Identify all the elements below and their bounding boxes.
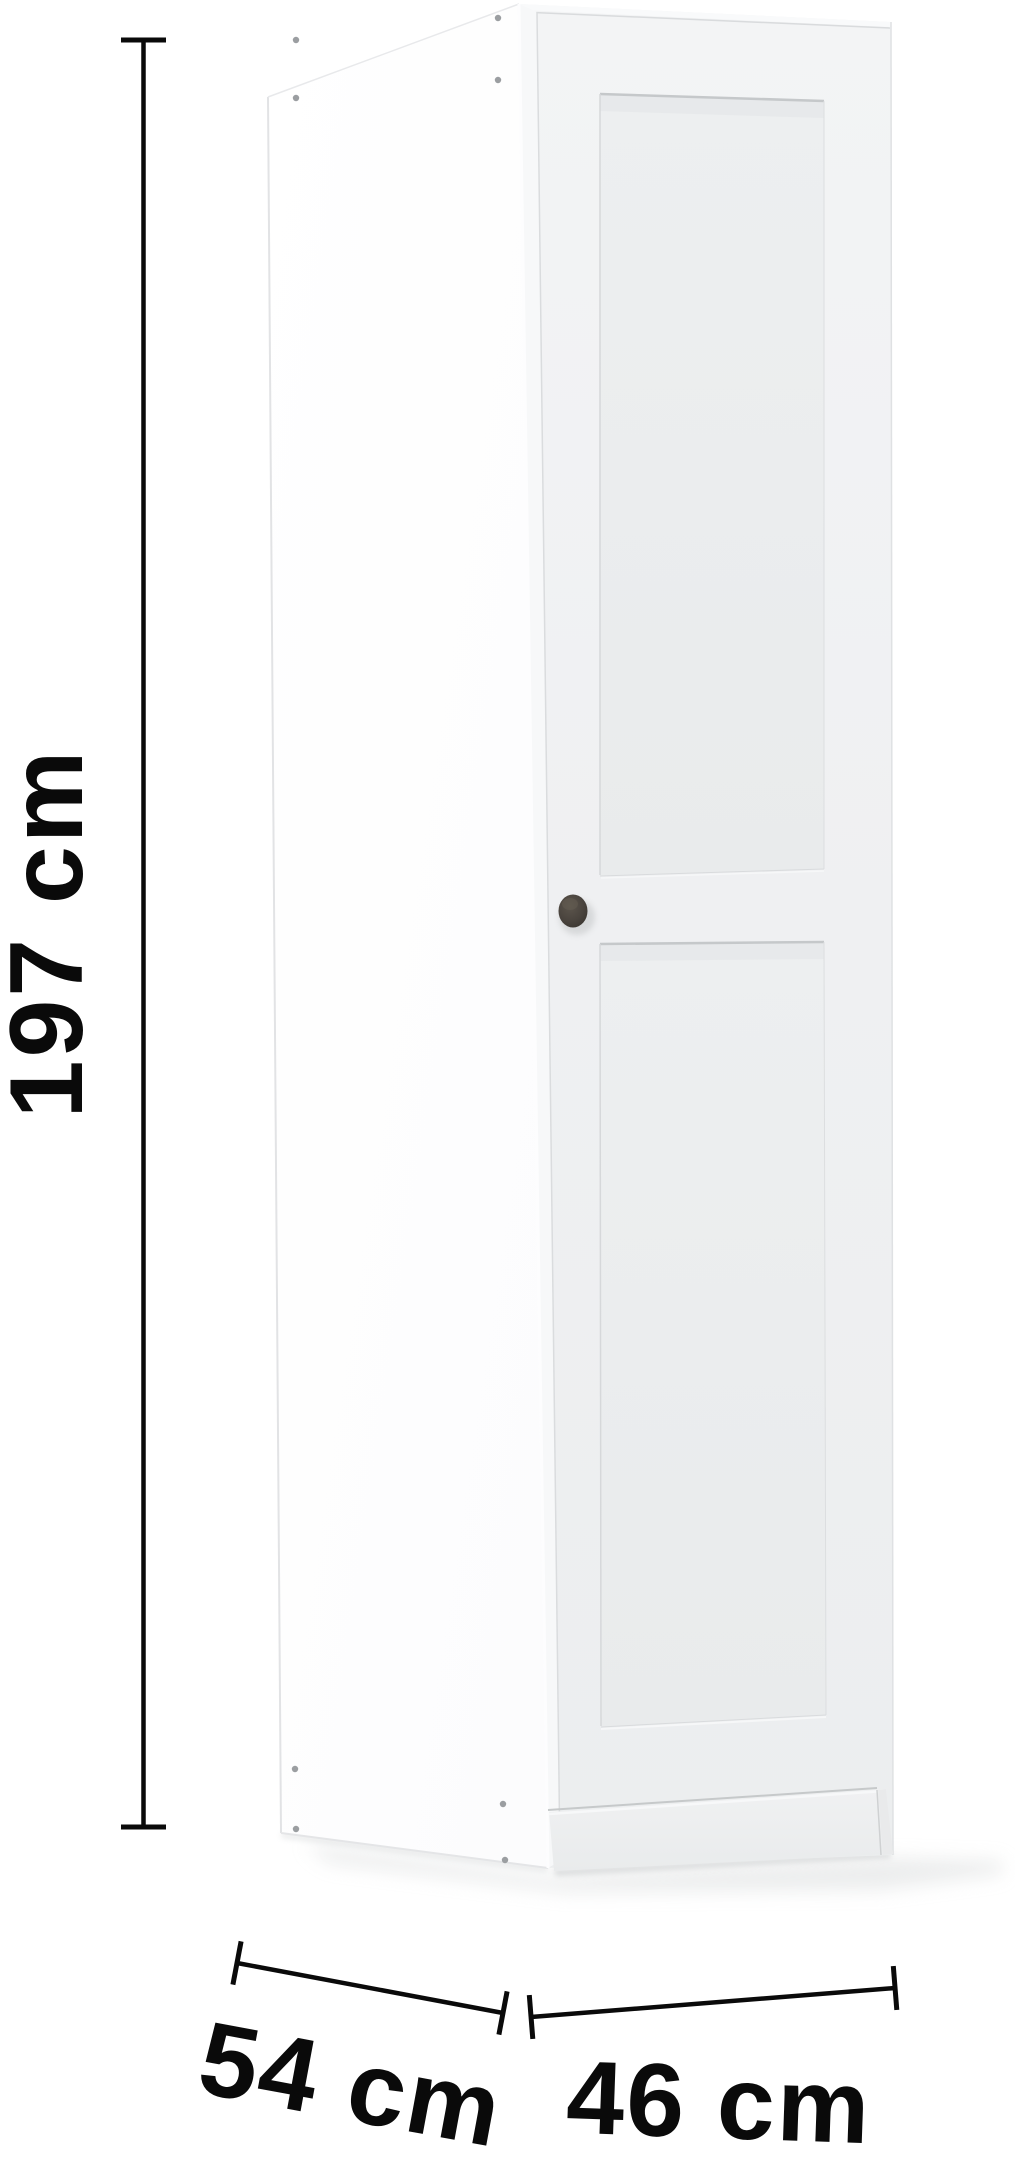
wardrobe-side-panel (268, 4, 548, 1868)
width-dimension-line (529, 1966, 897, 2039)
height-dimension-label: 197 cm (0, 748, 99, 1119)
height-dimension-line (121, 40, 166, 1827)
product-dimension-diagram: 197 cm 54 cm 46 cm (0, 0, 1015, 2158)
width-dimension-label: 46 cm (565, 2046, 873, 2158)
door-upper-panel (600, 93, 824, 878)
wardrobe-illustration (0, 0, 1015, 2158)
door-lower-panel (600, 941, 826, 1729)
